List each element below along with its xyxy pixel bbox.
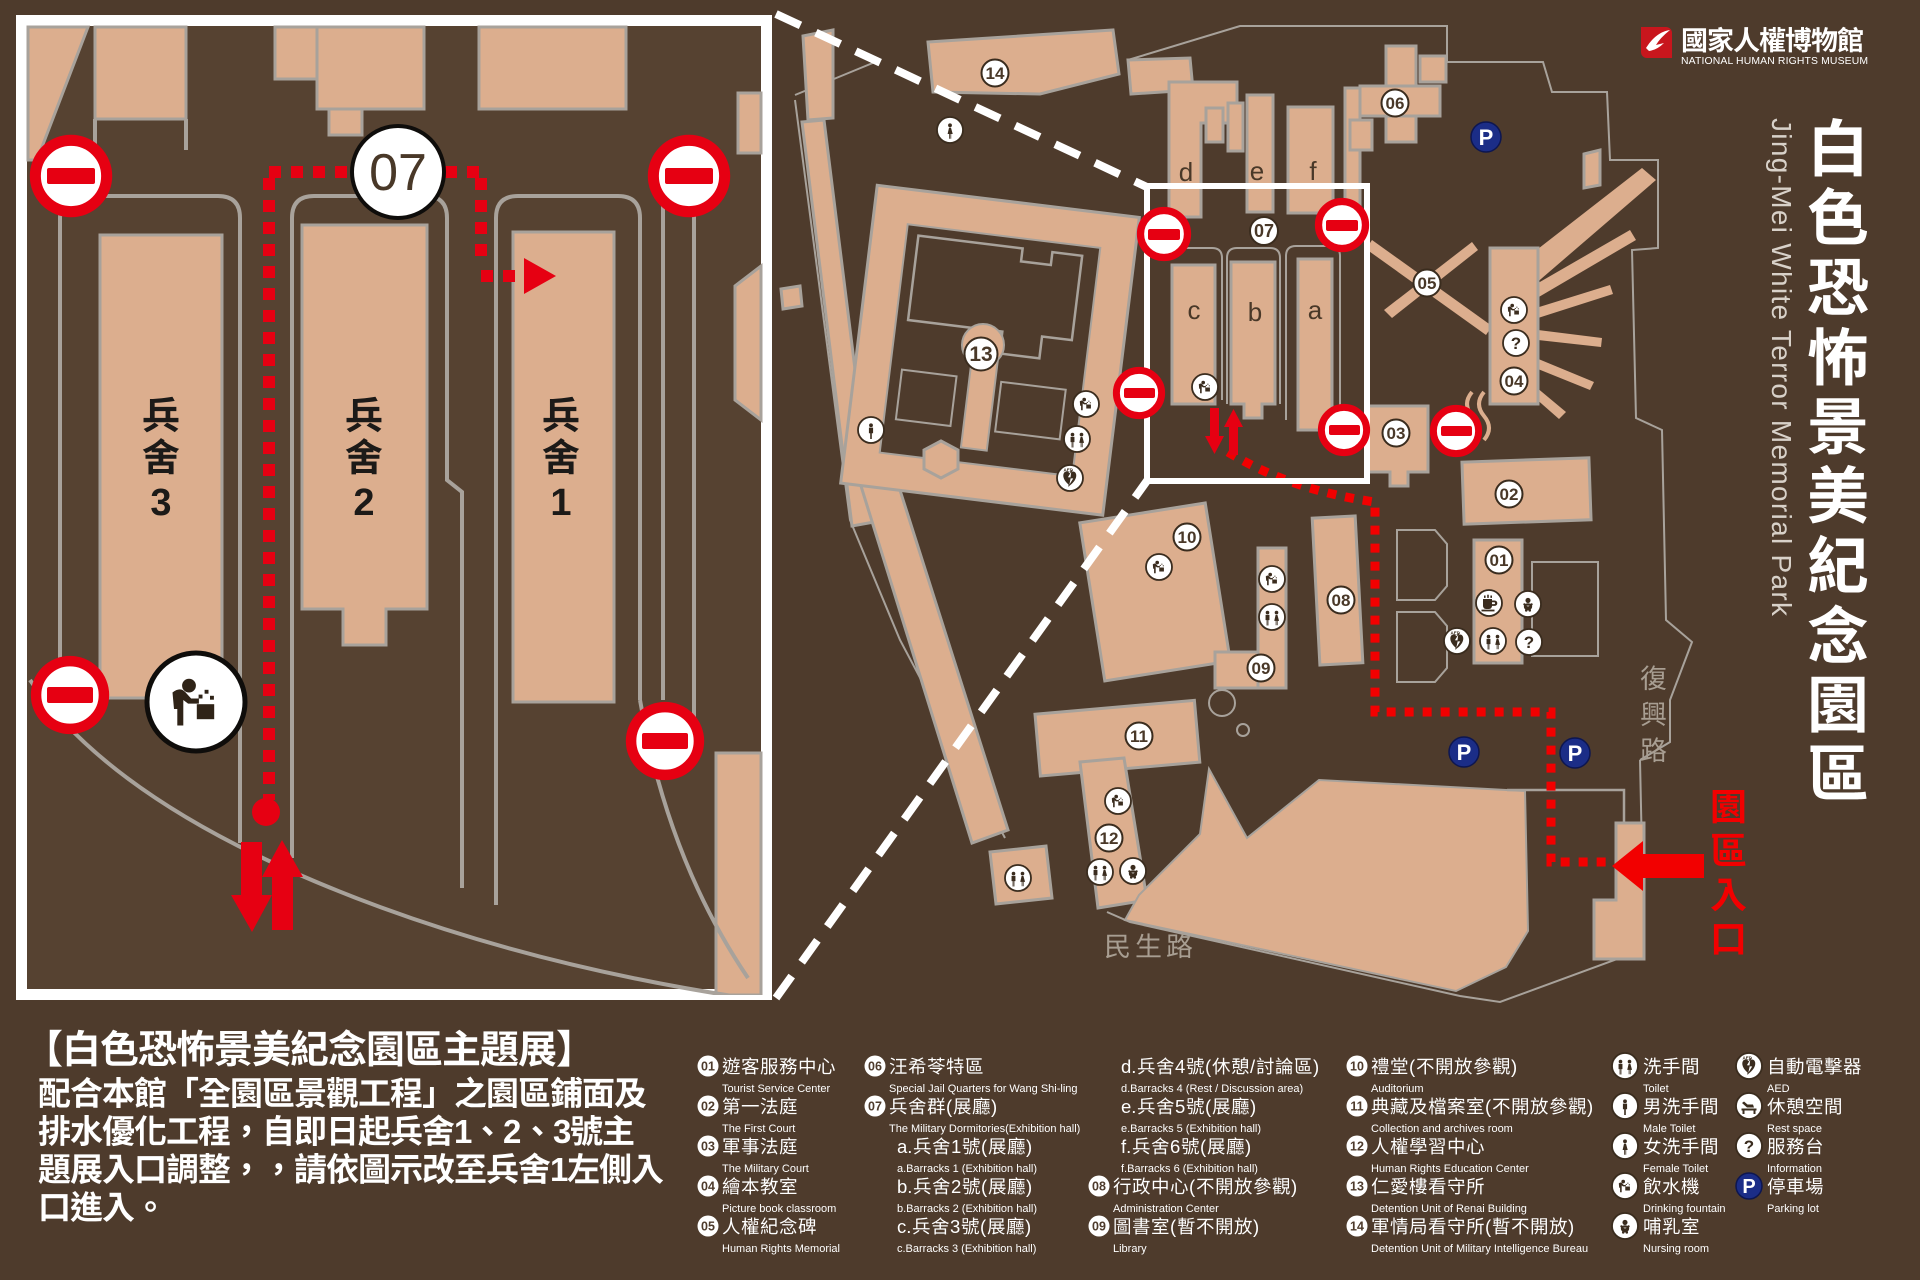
svg-text:1: 1 (550, 1151, 568, 1188)
svg-text:): ) (1025, 1216, 1031, 1237)
svg-text:): ) (1253, 1216, 1259, 1237)
svg-text:): ) (1291, 1176, 1297, 1197)
svg-text:Special Jail Quarters for Wang: Special Jail Quarters for Wang Shi-ling (889, 1083, 1078, 1095)
svg-text:): ) (1313, 1056, 1319, 1077)
svg-text:Human Rights Memorial: Human Rights Memorial (722, 1243, 840, 1255)
svg-text:e.: e. (1121, 1096, 1136, 1117)
svg-text:12: 12 (1100, 829, 1119, 848)
svg-text:2: 2 (951, 1176, 961, 1197)
svg-text:(: ( (1170, 1216, 1177, 1237)
svg-text:(: ( (1205, 1056, 1212, 1077)
svg-text:14: 14 (1350, 1220, 1364, 1234)
svg-text:11: 11 (1130, 727, 1148, 746)
svg-text:P: P (1479, 125, 1494, 150)
svg-text:06: 06 (868, 1060, 882, 1074)
svg-text:07: 07 (1254, 221, 1274, 241)
svg-text:10: 10 (1350, 1060, 1364, 1074)
svg-text:07: 07 (868, 1100, 882, 1114)
svg-text:05: 05 (701, 1220, 715, 1234)
svg-text:): ) (1568, 1216, 1574, 1237)
svg-text:c.Barracks 3 (Exhibition hall): c.Barracks 3 (Exhibition hall) (897, 1243, 1036, 1255)
svg-text:09: 09 (1252, 659, 1271, 678)
svg-text:?: ? (1744, 1137, 1754, 1156)
svg-text:(: ( (1485, 1096, 1492, 1117)
svg-text:11: 11 (1350, 1100, 1363, 1114)
svg-text:c: c (1188, 295, 1201, 325)
svg-text:?: ? (1524, 633, 1534, 652)
svg-text:12: 12 (1350, 1140, 1364, 1154)
svg-text:f: f (1309, 156, 1317, 186)
svg-text:(: ( (1189, 1176, 1196, 1197)
svg-text:01: 01 (701, 1060, 715, 1074)
svg-text:d: d (1179, 157, 1193, 187)
svg-text:04: 04 (701, 1180, 715, 1194)
svg-text:04: 04 (1505, 372, 1524, 391)
svg-text:d.: d. (1121, 1056, 1136, 1077)
svg-text:AED: AED (1064, 468, 1074, 473)
svg-text:c.: c. (897, 1216, 911, 1237)
svg-text:Male Toilet: Male Toilet (1643, 1123, 1695, 1135)
svg-text:AED: AED (1743, 1056, 1753, 1061)
svg-text:13: 13 (969, 343, 992, 366)
svg-text:(: ( (1205, 1096, 1212, 1117)
svg-text:1: 1 (951, 1136, 961, 1157)
svg-text:5: 5 (1175, 1096, 1185, 1117)
svg-text:2: 2 (503, 1113, 521, 1150)
svg-text:3: 3 (553, 1113, 571, 1150)
svg-text:Information: Information (1767, 1163, 1822, 1175)
svg-text:The Military Dormitories(Exhib: The Military Dormitories(Exhibition hall… (889, 1123, 1080, 1135)
svg-text:Auditorium: Auditorium (1371, 1083, 1424, 1095)
svg-text:b: b (1248, 297, 1262, 327)
svg-text:(: ( (946, 1096, 953, 1117)
svg-text:6: 6 (1170, 1136, 1180, 1157)
svg-text:(: ( (1409, 1056, 1416, 1077)
svg-text:Collection and archives room: Collection and archives room (1371, 1123, 1513, 1135)
svg-text:10: 10 (1178, 528, 1197, 547)
svg-text:Administration Center: Administration Center (1113, 1203, 1219, 1215)
svg-text:d.Barracks 4 (Rest / Discussio: d.Barracks 4 (Rest / Discussion area) (1121, 1083, 1303, 1095)
svg-text:Library: Library (1113, 1243, 1147, 1255)
svg-text:a: a (1308, 295, 1323, 325)
svg-text:(: ( (981, 1136, 988, 1157)
svg-text:03: 03 (1387, 424, 1406, 443)
svg-text:Nursing room: Nursing room (1643, 1243, 1709, 1255)
svg-text:08: 08 (1092, 1180, 1106, 1194)
svg-text:e: e (1250, 156, 1264, 186)
svg-text:(: ( (981, 1176, 988, 1197)
svg-text:1: 1 (550, 482, 571, 524)
svg-text:Female Toilet: Female Toilet (1643, 1163, 1708, 1175)
svg-text:Human Rights Education Center: Human Rights Education Center (1371, 1163, 1529, 1175)
svg-text:01: 01 (1490, 551, 1509, 570)
svg-text:a.Barracks 1 (Exhibition hall): a.Barracks 1 (Exhibition hall) (897, 1163, 1037, 1175)
svg-text:b.: b. (897, 1176, 912, 1197)
svg-text:06: 06 (1386, 94, 1405, 113)
svg-text:): ) (1026, 1136, 1032, 1157)
svg-text:): ) (991, 1096, 997, 1117)
svg-text:02: 02 (1500, 485, 1519, 504)
svg-text:Toilet: Toilet (1643, 1083, 1669, 1095)
svg-text:Detention Unit of Military Int: Detention Unit of Military Intelligence … (1371, 1243, 1588, 1255)
svg-text:02: 02 (701, 1100, 715, 1114)
svg-text:Picture book classroom: Picture book classroom (722, 1203, 836, 1215)
svg-text:Tourist Service Center: Tourist Service Center (722, 1083, 831, 1095)
svg-text:09: 09 (1092, 1220, 1106, 1234)
svg-text:The First Court: The First Court (722, 1123, 795, 1135)
svg-text:): ) (1245, 1136, 1251, 1157)
svg-text:b.Barracks 2 (Exhibition hall): b.Barracks 2 (Exhibition hall) (897, 1203, 1037, 1215)
svg-text:?: ? (1511, 334, 1521, 353)
svg-text:(: ( (1485, 1216, 1492, 1237)
svg-text:(: ( (1200, 1136, 1207, 1157)
svg-text:2: 2 (353, 482, 374, 524)
svg-text:): ) (1587, 1096, 1593, 1117)
svg-text:Jing-Mei White Terror Memorial: Jing-Mei White Terror Memorial Park (1766, 118, 1797, 617)
svg-text:): ) (1511, 1056, 1517, 1077)
svg-text:): ) (1250, 1096, 1256, 1117)
svg-text:): ) (1026, 1176, 1032, 1197)
svg-text:P: P (1742, 1176, 1755, 1198)
svg-text:AED: AED (1451, 631, 1461, 636)
svg-text:3: 3 (150, 482, 171, 524)
svg-text:P: P (1568, 741, 1583, 766)
svg-text:a.: a. (897, 1136, 912, 1157)
svg-text:Drinking fountain: Drinking fountain (1643, 1203, 1726, 1215)
svg-text:(: ( (980, 1216, 987, 1237)
svg-text:f.Barracks 6 (Exhibition hall): f.Barracks 6 (Exhibition hall) (1121, 1163, 1258, 1175)
svg-text:/: / (1250, 1056, 1256, 1077)
svg-text:1: 1 (454, 1113, 472, 1150)
svg-text:The Military Court: The Military Court (722, 1163, 809, 1175)
svg-text:AED: AED (1767, 1083, 1790, 1095)
svg-text:f.: f. (1121, 1136, 1131, 1157)
svg-text:08: 08 (1332, 591, 1351, 610)
svg-text:03: 03 (701, 1140, 715, 1154)
svg-text:05: 05 (1418, 274, 1437, 293)
svg-text:13: 13 (1350, 1180, 1364, 1194)
svg-text:P: P (1457, 740, 1472, 765)
svg-text:4: 4 (1175, 1056, 1185, 1077)
svg-text:3: 3 (950, 1216, 960, 1237)
svg-text:14: 14 (986, 64, 1005, 83)
svg-text:e.Barracks 5 (Exhibition hall): e.Barracks 5 (Exhibition hall) (1121, 1123, 1261, 1135)
svg-text:NATIONAL HUMAN RIGHTS MUSEUM: NATIONAL HUMAN RIGHTS MUSEUM (1681, 56, 1868, 67)
svg-text:Detention Unit of Renai Buildi: Detention Unit of Renai Building (1371, 1203, 1527, 1215)
svg-text:07: 07 (369, 144, 427, 202)
svg-text:Rest space: Rest space (1767, 1123, 1822, 1135)
svg-text:Parking lot: Parking lot (1767, 1203, 1819, 1215)
